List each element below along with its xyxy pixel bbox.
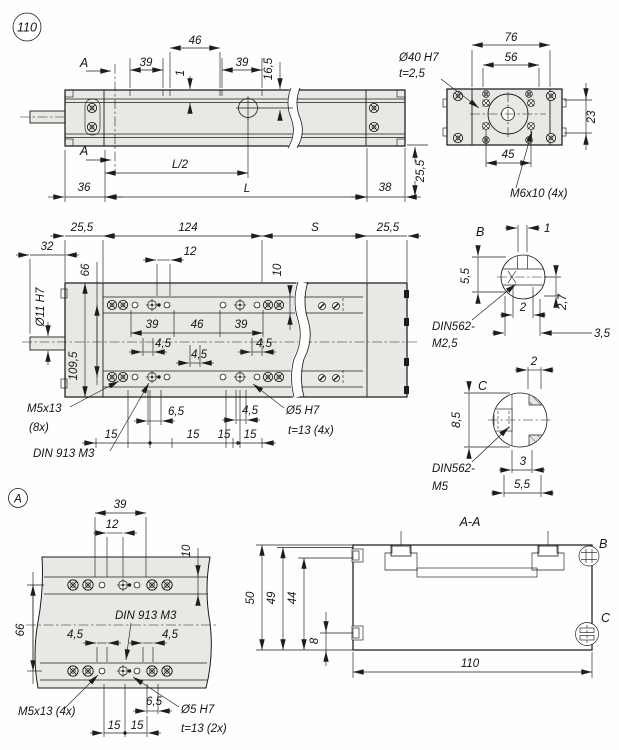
dim-32: 32: [41, 241, 54, 253]
section-aa: A-A B C: [245, 515, 611, 678]
dim-15-b: 15: [187, 429, 200, 441]
section-label-bottom: A: [79, 144, 88, 158]
dim-6-5: 6,5: [168, 406, 185, 418]
dim-15-a: 15: [105, 429, 118, 441]
left-edge-slots: [352, 549, 363, 640]
dim-l: L: [244, 183, 250, 195]
dim-4-5-c: 4,5: [256, 338, 273, 350]
detail-c-leader: [472, 427, 509, 462]
detail-c-title: C: [478, 379, 488, 393]
dim-109-5: 109,5: [68, 351, 80, 380]
section-aa-title: A-A: [459, 515, 481, 529]
detail-b-dimensions: 1 5,5 2 2,7 3,5 B DIN562- M2,5: [432, 223, 611, 350]
dim-b-5-5: 5,5: [460, 267, 472, 284]
dim-4-5-a: 4,5: [155, 338, 172, 350]
dim-c-3: 3: [520, 456, 527, 468]
dim-b-1: 1: [544, 223, 550, 235]
label-a-screw: M5x13 (4x): [18, 706, 76, 718]
detail-a-badge: A: [9, 489, 28, 508]
dim-1: 1: [175, 70, 187, 76]
label-b-din-1: DIN562-: [432, 321, 475, 333]
dim-39-a: 39: [146, 319, 159, 331]
dim-a-4-5-right: 4,5: [162, 629, 179, 641]
break-gap: [292, 88, 297, 148]
dim-12: 12: [184, 246, 197, 258]
dim-a-4-5-left: 4,5: [67, 629, 84, 641]
detail-c: 2 8,5 3 5,5 C DIN562- M5: [432, 356, 554, 497]
label-b: B: [599, 537, 607, 551]
dim-4-5-d: 4,5: [242, 405, 259, 417]
detail-b: 1 5,5 2 2,7 3,5 B DIN562- M2,5: [432, 223, 611, 350]
drawing-page: 110: [0, 0, 619, 750]
dim-56: 56: [505, 52, 518, 64]
plan-shaft: [30, 337, 65, 350]
label-c-din-2: M5: [432, 481, 449, 493]
dim-23: 23: [586, 110, 598, 124]
label-screw: M5x13: [27, 403, 62, 415]
slot-c-callout: C: [576, 611, 612, 646]
technical-drawing: 110: [0, 0, 619, 750]
dim-39-b: 39: [235, 319, 248, 331]
label-screw-qty: (8x): [29, 422, 49, 434]
dim-a-39: 39: [114, 499, 127, 511]
dim-25-5: 25,5: [415, 159, 427, 183]
dim-l-half: L/2: [172, 159, 189, 171]
label-dowel-depth: t=13 (4x): [288, 425, 334, 437]
dim-66: 66: [80, 263, 92, 276]
dim-50: 50: [245, 591, 257, 604]
label-a-dowel-depth: t=13 (2x): [181, 723, 227, 735]
dim-c-2: 2: [530, 356, 538, 368]
dim-76: 76: [505, 32, 518, 44]
dim-a-66: 66: [15, 623, 27, 636]
dim-16-5: 16,5: [263, 57, 275, 80]
label-setscrew: DIN 913 M3: [33, 448, 95, 460]
t-slot-left: [385, 531, 417, 570]
dim-46: 46: [189, 35, 202, 47]
dim-8: 8: [309, 637, 321, 644]
detail-a: A 39 12 10: [9, 489, 227, 738]
dim-a-15-b: 15: [131, 720, 144, 732]
dim-15-c: 15: [218, 429, 231, 441]
dim-38: 38: [379, 182, 392, 194]
dim-44: 44: [287, 592, 299, 605]
dim-25-5-left: 25,5: [70, 222, 94, 234]
dim-110: 110: [461, 658, 480, 670]
dim-25-5-right: 25,5: [376, 222, 400, 234]
dim-10: 10: [272, 263, 284, 276]
figure-badge: 110: [13, 13, 41, 41]
dim-s: S: [311, 222, 319, 234]
dim-b-2: 2: [519, 302, 527, 314]
label-shaft-bore: Ø11 H7: [35, 287, 47, 327]
label-bore: Ø40 H7: [398, 52, 439, 64]
dim-4-5-b: 4,5: [191, 349, 208, 361]
belt-recess: [417, 568, 537, 577]
label-thread: M6x10 (4x): [510, 188, 568, 200]
detail-b-title: B: [476, 225, 484, 239]
label-c: C: [601, 611, 611, 625]
dim-b-2-7: 2,7: [557, 293, 569, 311]
plan-view-body: [65, 283, 407, 397]
label-a-setscrew: DIN 913 M3: [115, 610, 177, 622]
detail-a-badge-label: A: [13, 494, 22, 506]
figure-number: 110: [17, 21, 37, 35]
dim-124: 124: [178, 222, 197, 234]
dim-a-12: 12: [106, 519, 119, 531]
dim-a-15-a: 15: [108, 720, 121, 732]
dim-c-5-5: 5,5: [514, 479, 531, 491]
label-c-din-1: DIN562-: [432, 463, 475, 475]
dim-39-left: 39: [140, 57, 153, 69]
label-b-din-2: M2,5: [432, 338, 458, 350]
dim-15-d: 15: [244, 429, 257, 441]
dim-45: 45: [502, 149, 515, 161]
plan-view: 25,5 124 S 25,5 32 66 109,5 Ø11 H7: [16, 222, 421, 460]
dim-a-10: 10: [181, 544, 193, 557]
dim-b-3-5: 3,5: [594, 328, 611, 340]
label-bore-depth: t=2,5: [399, 68, 426, 80]
dim-36: 36: [78, 182, 91, 194]
section-label-top: A: [79, 56, 88, 70]
dim-39-right: 39: [236, 57, 249, 69]
detail-b-leader: [472, 284, 516, 320]
dim-a-6-5: 6,5: [146, 696, 163, 708]
dim-46: 46: [191, 319, 204, 331]
t-slot-right: [532, 531, 564, 570]
label-dowel: Ø5 H7: [285, 405, 320, 417]
label-a-dowel: Ø5 H7: [180, 704, 215, 716]
side-view: A A 46 39 39 1 16,5 L/2: [20, 35, 421, 202]
dim-c-8-5: 8,5: [451, 411, 463, 428]
end-view: 76 56 Ø40 H7 t=2,5 23 45 M6x10 (4x) 25,5: [398, 32, 598, 200]
slot-b-callout: B: [579, 537, 607, 566]
dim-49: 49: [266, 591, 278, 604]
